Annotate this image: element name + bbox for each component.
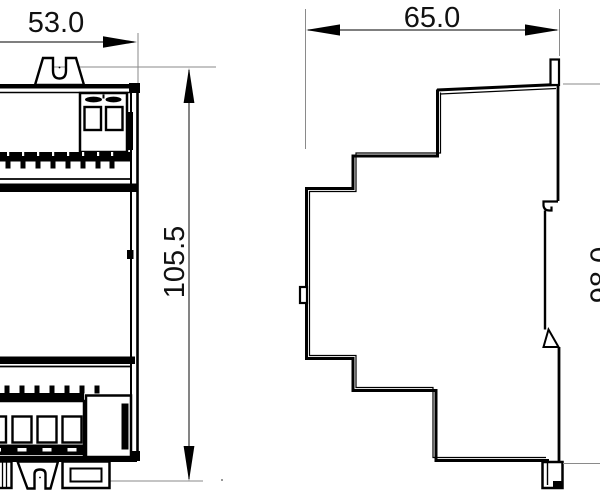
terminal-opening xyxy=(85,107,102,130)
vent-comb-bottom xyxy=(0,386,100,402)
terminal-opening xyxy=(63,417,82,443)
din-slider-foot xyxy=(63,462,110,489)
terminal-opening xyxy=(106,107,123,130)
bottom-right-block xyxy=(86,396,131,458)
din-rail-hook xyxy=(544,202,559,211)
terminal-opening xyxy=(13,417,32,443)
dim-label-side-depth: 65.0 xyxy=(404,2,460,34)
terminal-opening xyxy=(38,417,57,443)
dim-label-front-height: 105.5 xyxy=(159,226,191,299)
din-spring-clip xyxy=(544,330,559,348)
arrowhead-up-icon xyxy=(184,68,195,103)
dimension-side-height-clipped: 98.0 xyxy=(563,84,600,464)
side-view: 65.0 xyxy=(300,2,600,489)
side-latch xyxy=(300,287,307,303)
arrowhead-left-icon xyxy=(306,24,340,35)
rail-hook-tab xyxy=(551,60,560,86)
arrowhead-down-icon xyxy=(184,446,195,481)
bottom-terminal-block xyxy=(0,401,84,457)
din-foot-left xyxy=(0,462,12,489)
arrowhead-right-icon xyxy=(525,24,559,35)
dim-label-front-width: 53.0 xyxy=(28,7,84,39)
vent-comb-top xyxy=(0,152,131,169)
arrowhead-right-icon xyxy=(103,36,137,48)
side-profile xyxy=(300,60,563,490)
mounting-tab-top xyxy=(35,58,84,85)
terminal-screw-slot xyxy=(106,97,122,103)
side-latch-mark xyxy=(127,250,134,259)
terminal-screw-slot xyxy=(85,97,102,103)
front-view: 53.0 105.5 xyxy=(0,7,223,489)
terminal-opening xyxy=(0,417,6,443)
din-foot-notched xyxy=(18,462,59,489)
side-foot xyxy=(543,462,563,489)
tab-center-mark xyxy=(59,67,61,69)
front-panel xyxy=(0,179,138,367)
dim-label-side-height: 98.0 xyxy=(586,247,600,303)
dimension-side-depth: 65.0 xyxy=(306,2,560,149)
top-terminal-block xyxy=(80,93,133,152)
technical-drawing-canvas: 53.0 105.5 xyxy=(0,0,600,500)
stray-dot xyxy=(221,479,223,481)
